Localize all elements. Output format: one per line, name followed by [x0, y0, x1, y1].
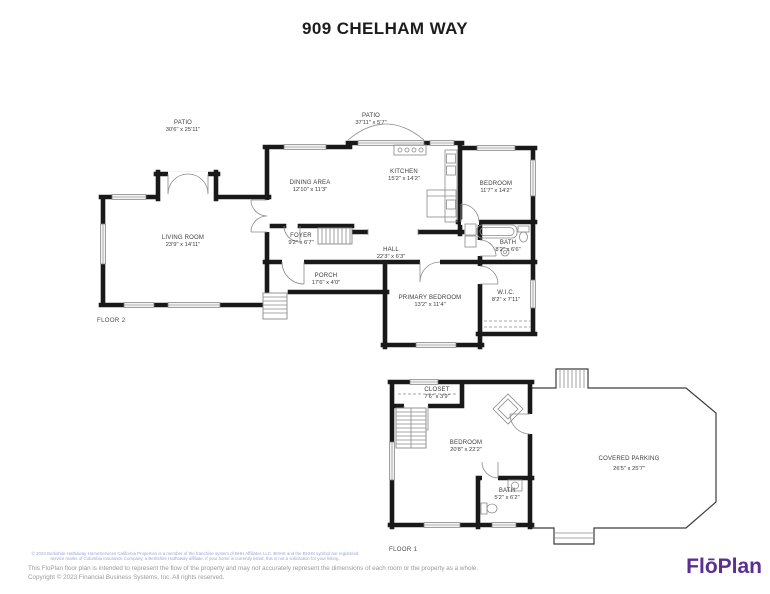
room-dims-patio-top: 37'11" x 5'7" — [355, 120, 386, 126]
floor2-plan: PATIO 30'6" x 25'11" PATIO 37'11" x 5'7"… — [97, 113, 535, 347]
room-dims-hall: 22'3" x 6'3" — [377, 254, 406, 260]
room-dims-foyer: 9'2" x 6'7" — [288, 240, 313, 246]
room-label-wic: W.I.C. — [497, 290, 515, 296]
floor1-stairs — [396, 408, 426, 448]
room-label-foyer: FOYER — [290, 233, 312, 239]
room-dims-porch: 17'6" x 4'0" — [312, 280, 341, 286]
room-dims-living: 23'9" x 14'11" — [166, 242, 201, 248]
room-label-porch: PORCH — [315, 273, 338, 279]
room-dims-covered-parking: 26'5" x 25'7" — [613, 466, 645, 472]
room-dims-bedroom-f1: 20'8" x 22'2" — [450, 447, 482, 453]
floplan-logo: FlōPlan — [686, 555, 762, 579]
room-label-covered-parking: COVERED PARKING — [599, 456, 660, 462]
room-label-primary: PRIMARY BEDROOM — [399, 295, 462, 301]
room-dims-bedroom-f2: 11'7" x 14'2" — [480, 188, 511, 194]
room-label-bath-f2: BATH — [500, 240, 516, 246]
room-label-dining: DINING AREA — [290, 180, 331, 186]
room-label-hall: HALL — [383, 247, 399, 253]
room-dims-wic: 8'2" x 7'11" — [492, 297, 520, 303]
room-dims-primary: 13'2" x 11'4" — [414, 302, 445, 308]
floorplan-page: 909 CHELHAM WAY — [0, 0, 770, 594]
room-dims-kitchen: 15'2" x 14'2" — [388, 176, 420, 182]
room-label-bath-f1: BATH — [499, 488, 515, 494]
copyright-text: Copyright © 2023 Financial Business Syst… — [28, 574, 224, 581]
room-label-kitchen: KITCHEN — [390, 169, 418, 175]
brokerage-disclaimer: © 2023 Berkshire Hathaway HomeServices C… — [28, 551, 362, 562]
room-dims-bath-f2: 8'2" x 6'6" — [495, 247, 520, 253]
room-label-patio-top: PATIO — [362, 113, 380, 119]
room-label-living: LIVING ROOM — [162, 235, 204, 241]
room-dims-closet: 7'6" x 3'9" — [424, 394, 449, 400]
floor1-windows — [390, 380, 516, 528]
floor1-label: FLOOR 1 — [389, 547, 418, 553]
room-label-bedroom-f1: BEDROOM — [450, 440, 482, 446]
room-label-patio-left: PATIO — [174, 120, 192, 126]
floor1-plan: CLOSET 7'6" x 3'9" BEDROOM 20'8" x 22'2"… — [389, 369, 716, 553]
room-dims-dining: 12'10" x 11'3" — [293, 187, 328, 193]
room-dims-bath-f1: 5'2" x 6'2" — [494, 495, 519, 501]
floor2-label: FLOOR 2 — [97, 318, 126, 324]
room-label-closet: CLOSET — [424, 387, 449, 393]
floplan-disclaimer: This FloPlan floor plan is intended to r… — [28, 565, 478, 572]
room-dims-patio-left: 30'6" x 25'11" — [166, 127, 201, 133]
floorplan-drawing: PATIO 30'6" x 25'11" PATIO 37'11" x 5'7"… — [0, 0, 770, 594]
room-label-bedroom-f2: BEDROOM — [480, 181, 512, 187]
